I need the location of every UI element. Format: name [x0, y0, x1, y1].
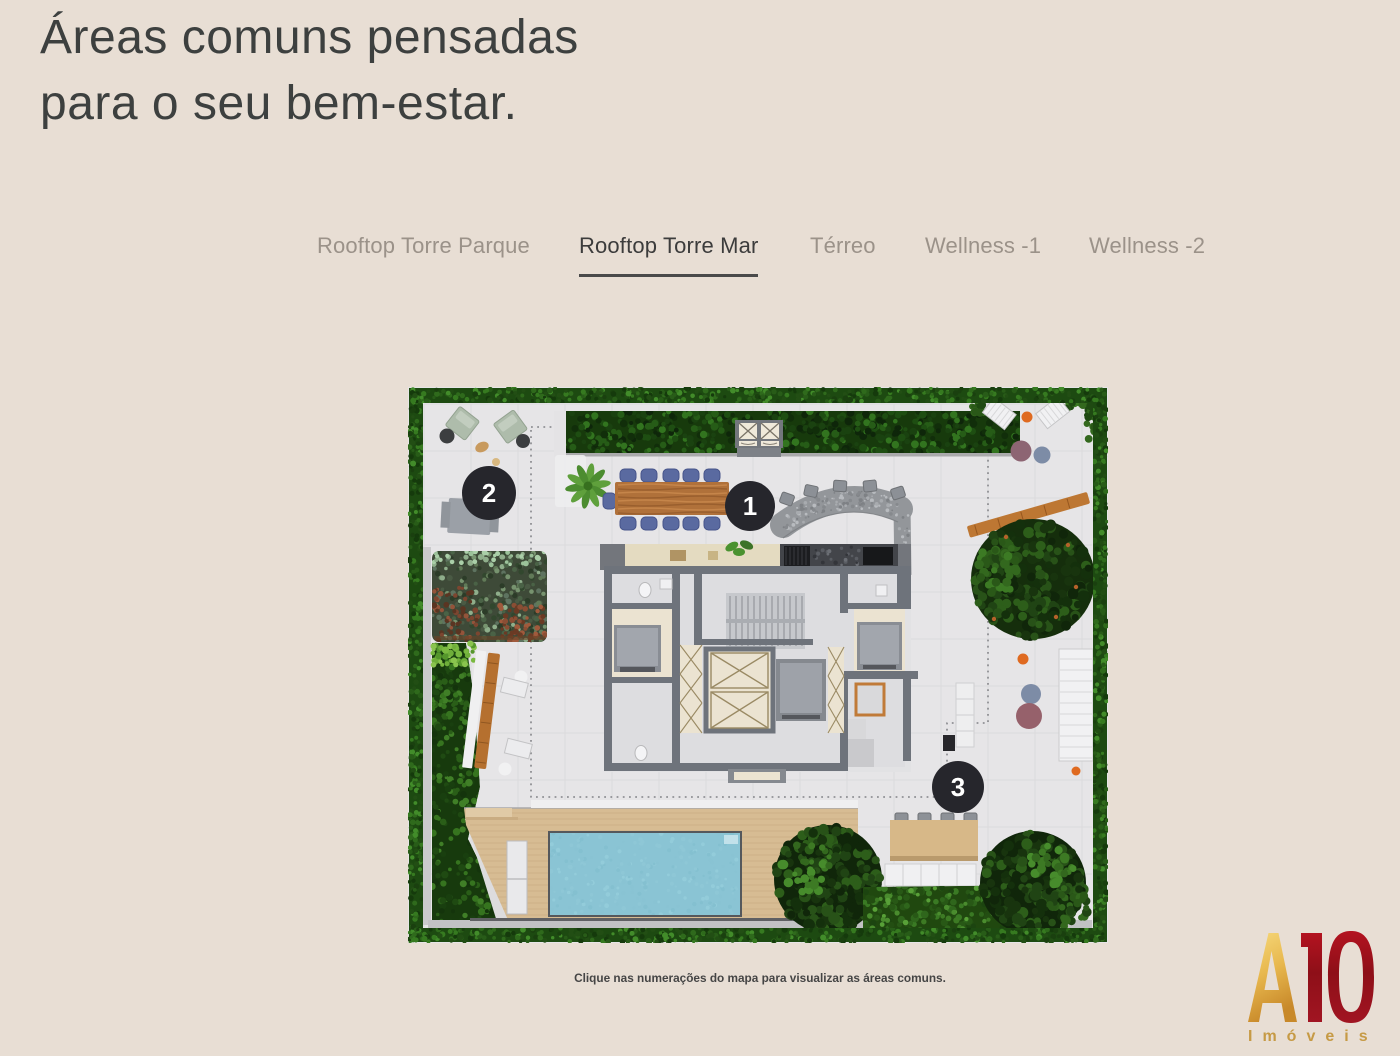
svg-text:Imóveis: Imóveis: [1248, 1028, 1378, 1045]
svg-text:2: 2: [482, 478, 496, 508]
svg-text:1: 1: [743, 491, 757, 521]
svg-text:3: 3: [951, 772, 965, 802]
